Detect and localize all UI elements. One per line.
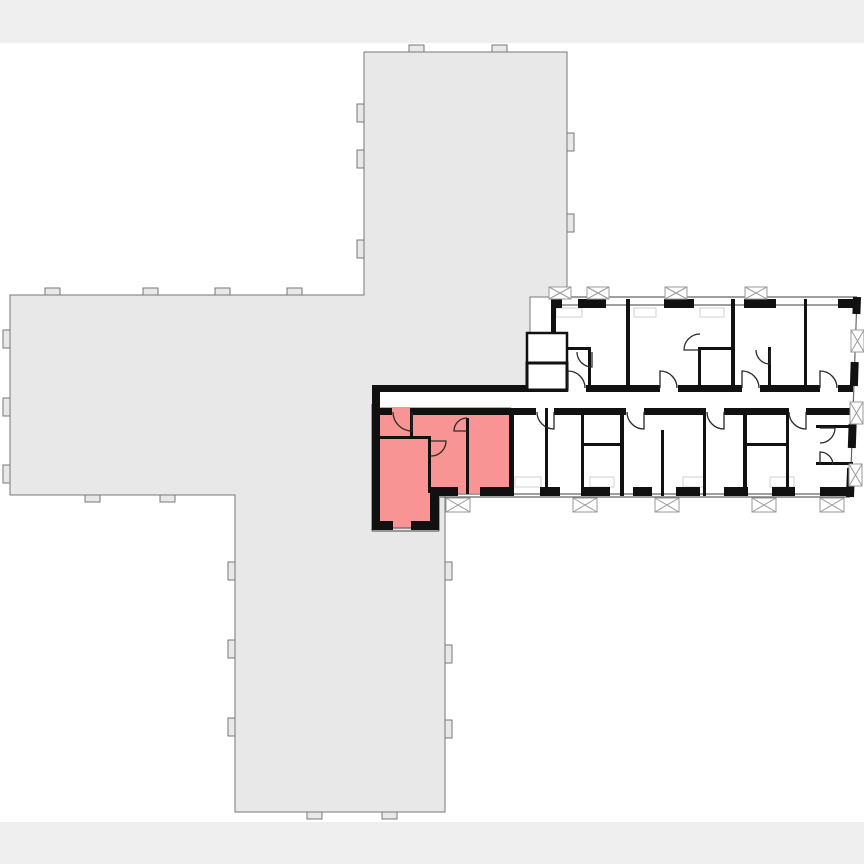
core-room (527, 363, 567, 390)
wall-segment (743, 408, 747, 496)
wall-segment (545, 408, 548, 496)
pilaster (85, 495, 100, 502)
pilaster (3, 398, 10, 416)
wall-segment (581, 408, 584, 496)
wall-segment (466, 418, 469, 494)
wall-segment (588, 347, 591, 390)
floorplan-page (0, 0, 864, 864)
wall-segment (854, 362, 855, 386)
pilaster (445, 562, 452, 580)
page-top-band (0, 0, 864, 43)
wall-segment (372, 385, 380, 408)
pilaster (357, 104, 364, 122)
pilaster (228, 718, 235, 736)
wall-segment (676, 487, 700, 496)
wall-segment (578, 299, 606, 308)
wall-segment (724, 408, 788, 415)
floorplan-canvas (0, 43, 864, 822)
pilaster (228, 562, 235, 580)
pilaster (287, 288, 302, 295)
wall-segment (661, 430, 664, 496)
pilaster (492, 45, 507, 52)
pilaster (3, 465, 10, 483)
pilaster (567, 214, 574, 232)
pilaster (567, 133, 574, 151)
wall-segment (772, 487, 795, 496)
pilaster (3, 330, 10, 348)
wall-segment (509, 408, 514, 496)
wall-segment (804, 299, 807, 390)
wall-segment (856, 297, 857, 314)
pilaster (357, 240, 364, 258)
pilaster (382, 812, 397, 819)
wall-segment (703, 408, 706, 496)
wall-segment (626, 299, 630, 390)
wall-segment (816, 462, 853, 465)
wall-segment (430, 487, 439, 530)
pilaster (307, 812, 322, 819)
wall-segment (664, 299, 694, 308)
pilaster (45, 288, 60, 295)
stair-elevator-core (527, 333, 567, 390)
page-bottom-band (0, 822, 864, 864)
wall-segment (554, 408, 626, 415)
pilaster (445, 645, 452, 663)
wall-segment (743, 443, 789, 446)
wall-segment (428, 436, 431, 493)
wall-segment (633, 487, 652, 496)
pilaster (445, 720, 452, 738)
wall-segment (620, 408, 624, 496)
wall-segment (586, 385, 660, 392)
wall-segment (581, 443, 623, 446)
pilaster (215, 288, 230, 295)
wall-segment (480, 487, 512, 496)
wall-segment (644, 408, 706, 415)
pilaster (143, 288, 158, 295)
pilaster (409, 45, 424, 52)
core-room (527, 333, 567, 363)
wall-segment (852, 424, 853, 448)
wall-segment (701, 347, 731, 350)
wall-segment (540, 487, 560, 496)
wall-segment (838, 385, 853, 392)
wall-segment (374, 436, 431, 439)
wall-segment (806, 408, 853, 415)
room-fill (553, 299, 853, 390)
pilaster (357, 150, 364, 168)
floorplan-svg (0, 43, 864, 822)
pilaster (160, 495, 175, 502)
pilaster (228, 640, 235, 658)
wall-segment (786, 408, 789, 496)
wall-segment (698, 347, 701, 390)
wall-segment (372, 404, 380, 530)
wall-segment (731, 299, 735, 390)
wall-segment (584, 487, 610, 496)
wall-segment (744, 299, 776, 308)
room-fill (512, 408, 850, 496)
wall-segment (410, 408, 536, 415)
